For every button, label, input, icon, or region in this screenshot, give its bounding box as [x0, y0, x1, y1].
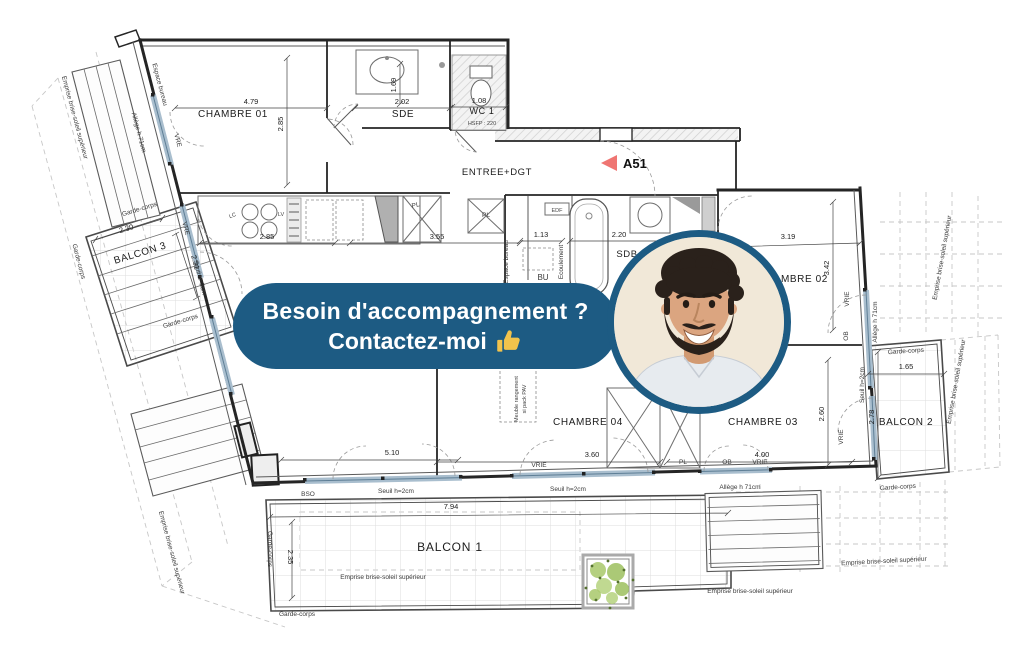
vre-label: VRE [172, 133, 182, 148]
bso-label: BSO [301, 491, 315, 498]
room-label-balcon2: BALCON 2 [879, 417, 933, 428]
room-label-entree: ENTREE+DGT [462, 167, 532, 178]
room-label-chambre04: CHAMBRE 04 [553, 417, 623, 428]
emprise-label: Emprise brise-soleil supérieur [157, 510, 186, 595]
vrie-label: VRIE [752, 459, 768, 466]
ob-label: OB [843, 331, 850, 340]
emprise-label: Emprise brise-soleil supérieur [932, 214, 954, 300]
espace-bureau-label: Espace bureau [503, 240, 510, 284]
dim-label: 7.94 [444, 502, 459, 511]
apartment-marker: A51 [601, 155, 647, 171]
room-label-chambre03: CHAMBRE 03 [728, 417, 798, 428]
allege-label: Allège h 71cm [872, 301, 879, 342]
seuil-label: Seuil h=2cm [550, 486, 586, 493]
dim-label: 1.13 [534, 230, 549, 239]
edf-label: EDF [552, 208, 564, 214]
kitchen-counter [198, 196, 441, 244]
dim-label: 1.08 [472, 96, 487, 105]
vrie-label: VRIE [844, 291, 851, 307]
seuil-label: Seuil h=2cm [859, 367, 866, 403]
room-label-wc1: WC 1 [470, 106, 495, 116]
lc-label: LC [228, 212, 237, 220]
meuble-label: si pack PAV [522, 384, 528, 413]
allege-label: Allège h 71cm [719, 484, 760, 491]
vrie-label: VRIE [838, 429, 845, 445]
dim-label: 1.65 [899, 362, 914, 371]
advisor-portrait-illustration [614, 237, 784, 407]
garde-corps-label: Garde-corps [880, 483, 917, 493]
lv-label: LV [278, 212, 285, 218]
dim-label: 2.20 [612, 230, 627, 239]
dim-label: 2.78 [867, 410, 876, 425]
room-label-chambre01: CHAMBRE 01 [198, 109, 268, 120]
emprise-label: Emprise brise-soleil supérieur [707, 588, 793, 595]
balcon1-deck [266, 495, 731, 611]
dim-label: 4.00 [755, 450, 770, 459]
garde-corps-label: Garde-corps [266, 531, 273, 568]
dim-label: 2.02 [395, 97, 410, 106]
room-label-sde: SDE [392, 109, 414, 120]
banner-text-line1: Besoin d'accompagnement ? [262, 296, 588, 326]
floorplan-post: 4.79 2.85 2.02 1.69 1.08 2.85 3.55 1.13 … [0, 0, 1025, 650]
seuil-label: Seuil h=2cm [378, 488, 414, 495]
marker-label: A51 [623, 156, 647, 171]
planter-plant [583, 555, 634, 609]
ob-label: OB [722, 459, 731, 466]
dim-label: 2.35 [286, 550, 295, 565]
dim-label: 1.69 [389, 78, 398, 93]
thumbs-up-icon [496, 328, 523, 355]
dim-label: 2.85 [276, 117, 285, 132]
pl-label: PL [411, 201, 421, 210]
emprise-label: Emprise brise-soleil supérieur [340, 574, 426, 581]
pl-label: PL [679, 459, 687, 466]
dim-label: 3.60 [585, 450, 600, 459]
brise-soleil-panel-right [705, 490, 823, 571]
marker-arrow-icon [601, 155, 617, 171]
pl-label: PL [482, 212, 490, 219]
ecoulement-label: Ecoulement [558, 245, 565, 280]
emprise-label: Emprise brise-soleil supérieur [946, 338, 968, 424]
room-label-balcon1: BALCON 1 [417, 540, 483, 554]
dim-label: 2.60 [817, 407, 826, 422]
banner-text-line2: Contactez-moi [328, 326, 486, 356]
dim-label: 3.55 [430, 232, 445, 241]
balcon3-deck [86, 202, 237, 366]
bu-label: BU [537, 273, 548, 282]
emprise-label: Emprise brise-soleil supérieur [841, 556, 928, 568]
hsfp-label: HSFP : 220 [468, 121, 496, 127]
vrie-label: VRIE [531, 462, 547, 469]
advisor-avatar [607, 230, 791, 414]
dim-label: 5.10 [385, 448, 400, 457]
dim-label: 4.79 [244, 97, 259, 106]
dim-label: 3.19 [781, 232, 796, 241]
contact-banner: Besoin d'accompagnement ? Contactez-moi [233, 283, 618, 369]
garde-corps-label: Garde-corps [279, 611, 316, 618]
meuble-label: Meuble rangement [514, 376, 520, 422]
garde-corps-label: Garde-corps [70, 243, 86, 280]
dim-label: 2.85 [260, 232, 275, 241]
